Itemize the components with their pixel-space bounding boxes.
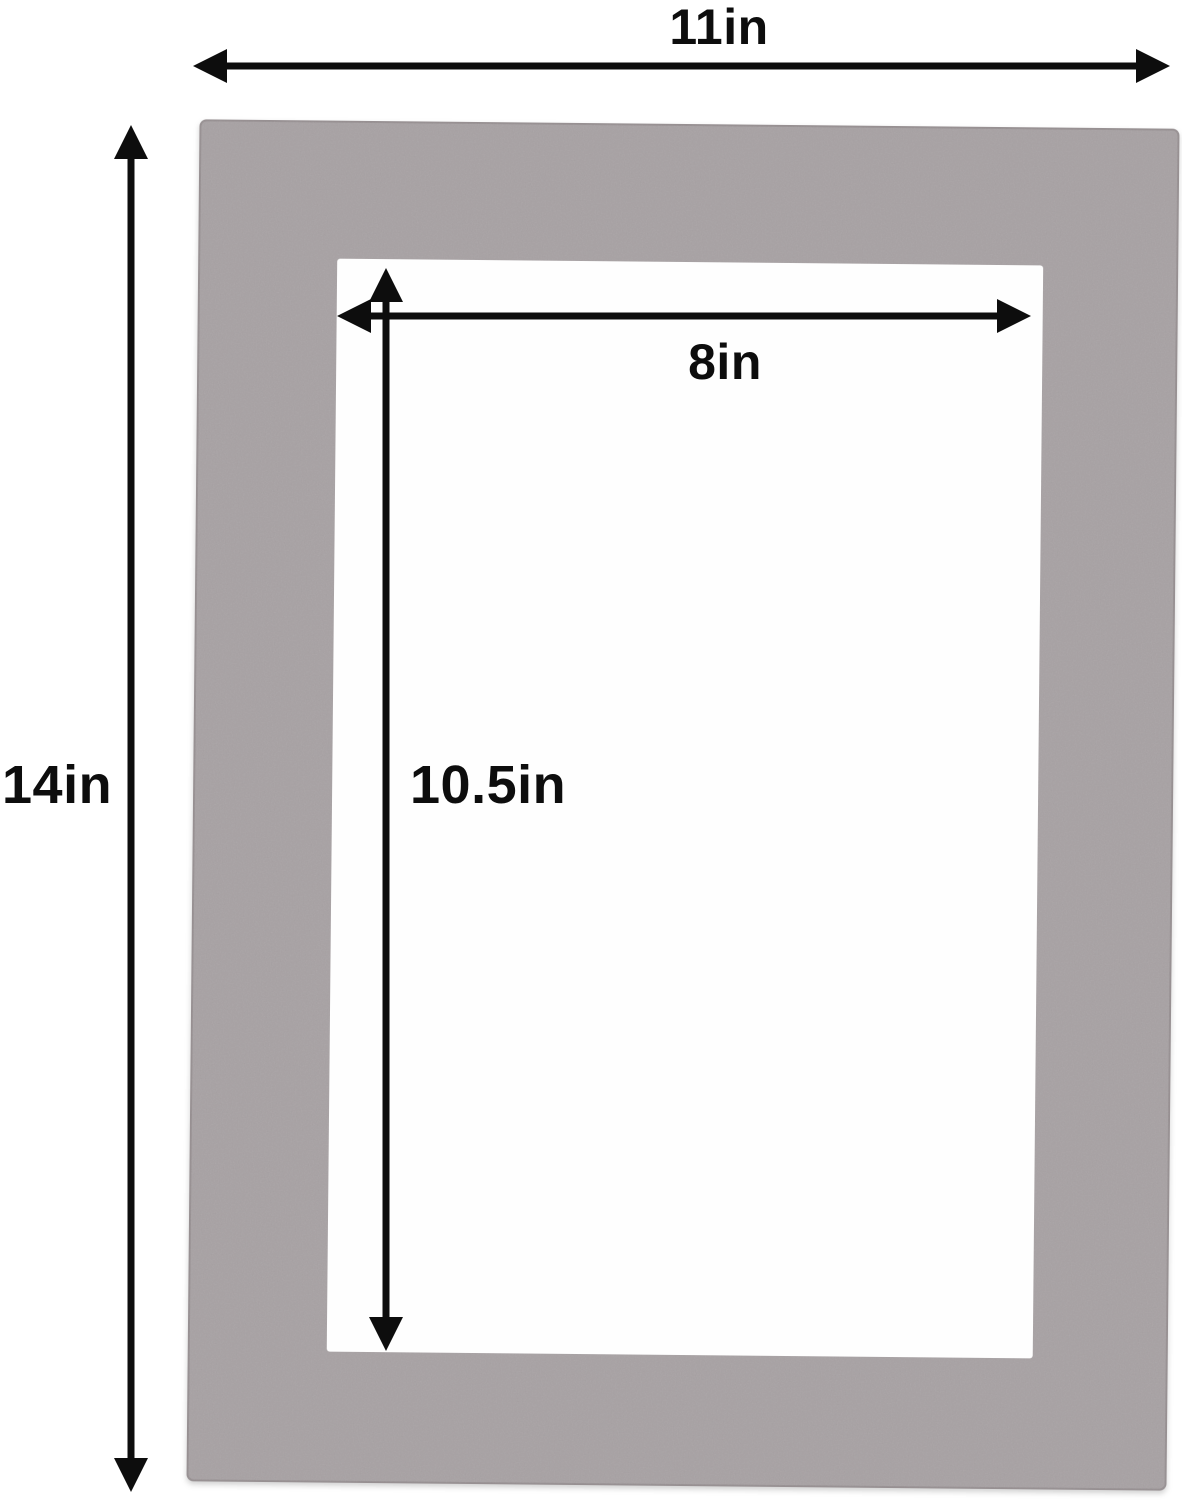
dimension-arrows bbox=[0, 0, 1182, 1500]
mat-dimension-diagram: 11in 14in 8in 10.5in bbox=[0, 0, 1182, 1500]
outer-width-label: 11in bbox=[569, 2, 869, 52]
opening-width-label: 8in bbox=[575, 337, 875, 387]
opening-height-arrow bbox=[369, 268, 403, 1351]
opening-width-arrow bbox=[337, 299, 1031, 333]
outer-height-label: 14in bbox=[2, 758, 112, 812]
outer-height-arrow bbox=[114, 125, 148, 1492]
opening-height-label: 10.5in bbox=[410, 758, 566, 812]
